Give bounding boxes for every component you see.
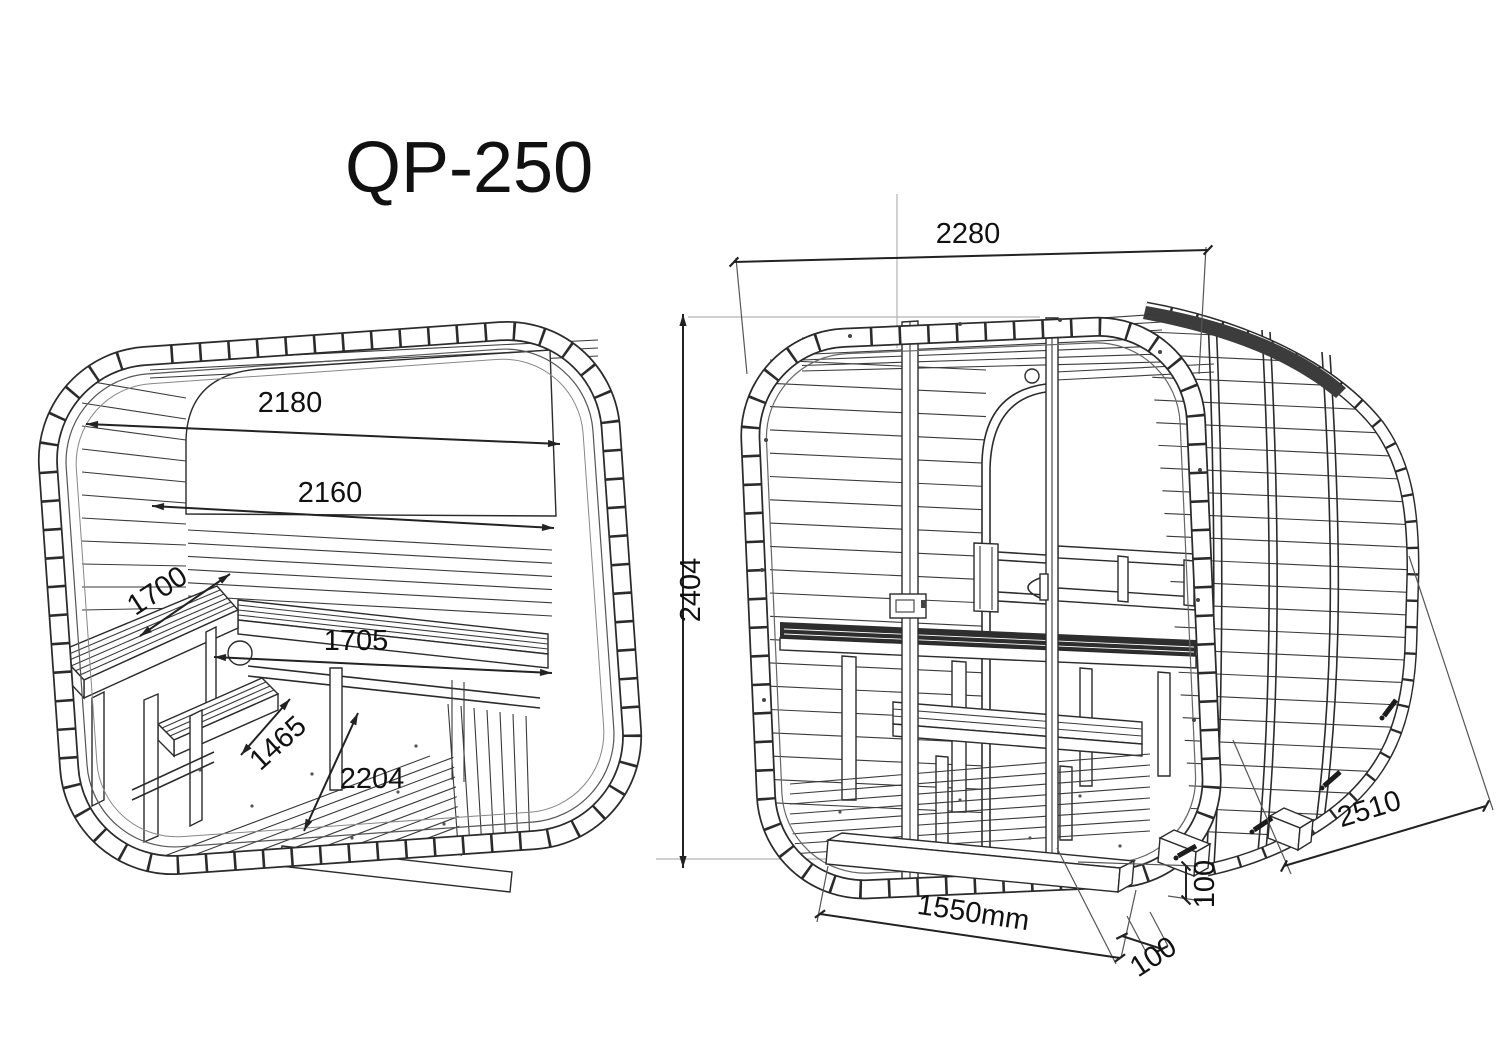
dim-label: 1705	[324, 625, 389, 657]
back-window	[186, 350, 556, 516]
bench-hole	[228, 641, 252, 665]
dim-label: 2280	[936, 218, 1001, 250]
dim-label: 2510	[1334, 785, 1405, 834]
back-bench	[238, 600, 548, 790]
model-title: QP-250	[345, 128, 593, 208]
technical-drawing-page: QP-250	[0, 0, 1500, 1060]
control-box	[890, 594, 926, 618]
dim-floor-diagonal: 2204	[304, 713, 404, 831]
dim-label: 2204	[340, 763, 405, 795]
dim-base-beam-width: 100	[1122, 912, 1182, 984]
inner-wall-curve-lines	[448, 704, 530, 852]
dim-label: 100	[1189, 860, 1221, 908]
dim-overall-height: 2404	[675, 314, 707, 868]
door-closer-knob	[1025, 369, 1039, 383]
exterior-view-drawing	[746, 306, 1414, 894]
sauna-dimension-drawing: QP-250	[0, 0, 1500, 1060]
dim-label: 2160	[298, 477, 363, 509]
dim-label: 100	[1124, 931, 1182, 984]
exterior-interior	[770, 314, 1214, 880]
dim-label: 2180	[258, 387, 323, 419]
dim-label: 2404	[675, 558, 707, 623]
side-wall-ribs	[1206, 318, 1338, 868]
